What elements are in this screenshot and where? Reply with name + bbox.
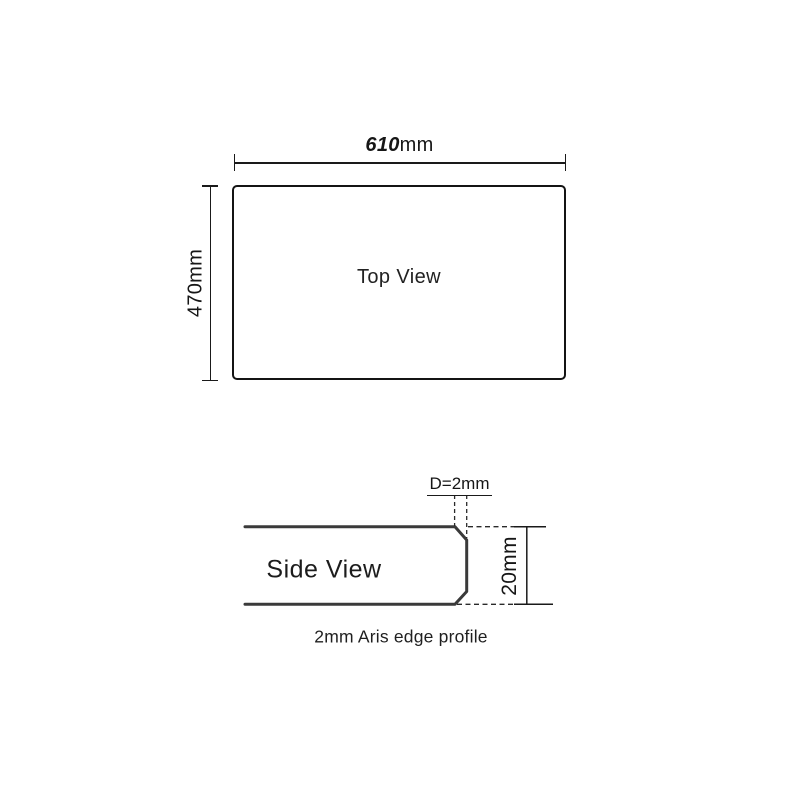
technical-drawing-canvas: 610mm 470mm Top View D=2mm Side View 20m… — [0, 0, 800, 800]
side-view-linework — [0, 0, 800, 800]
height-dimension-tick-top — [202, 185, 218, 187]
width-dimension-tick-left — [234, 154, 236, 171]
width-dimension-unit: mm — [400, 134, 434, 156]
drawing-caption: 2mm Aris edge profile — [314, 627, 487, 648]
top-view-outline: Top View — [232, 185, 566, 380]
width-dimension-tick-right — [565, 154, 567, 171]
height-dimension-tick-bottom — [202, 380, 218, 382]
side-view-label: Side View — [266, 556, 381, 585]
width-dimension-line — [234, 162, 565, 164]
height-dimension-line — [210, 186, 212, 380]
width-dimension-value: 610 — [365, 134, 399, 156]
top-view-height-dimension-label: 470mm — [185, 249, 208, 317]
edge-diameter-dimension-label: D=2mm — [427, 474, 493, 496]
top-view-label: Top View — [357, 266, 441, 289]
thickness-dimension-label: 20mm — [498, 536, 522, 596]
top-view-width-dimension-label: 610mm — [234, 134, 565, 157]
